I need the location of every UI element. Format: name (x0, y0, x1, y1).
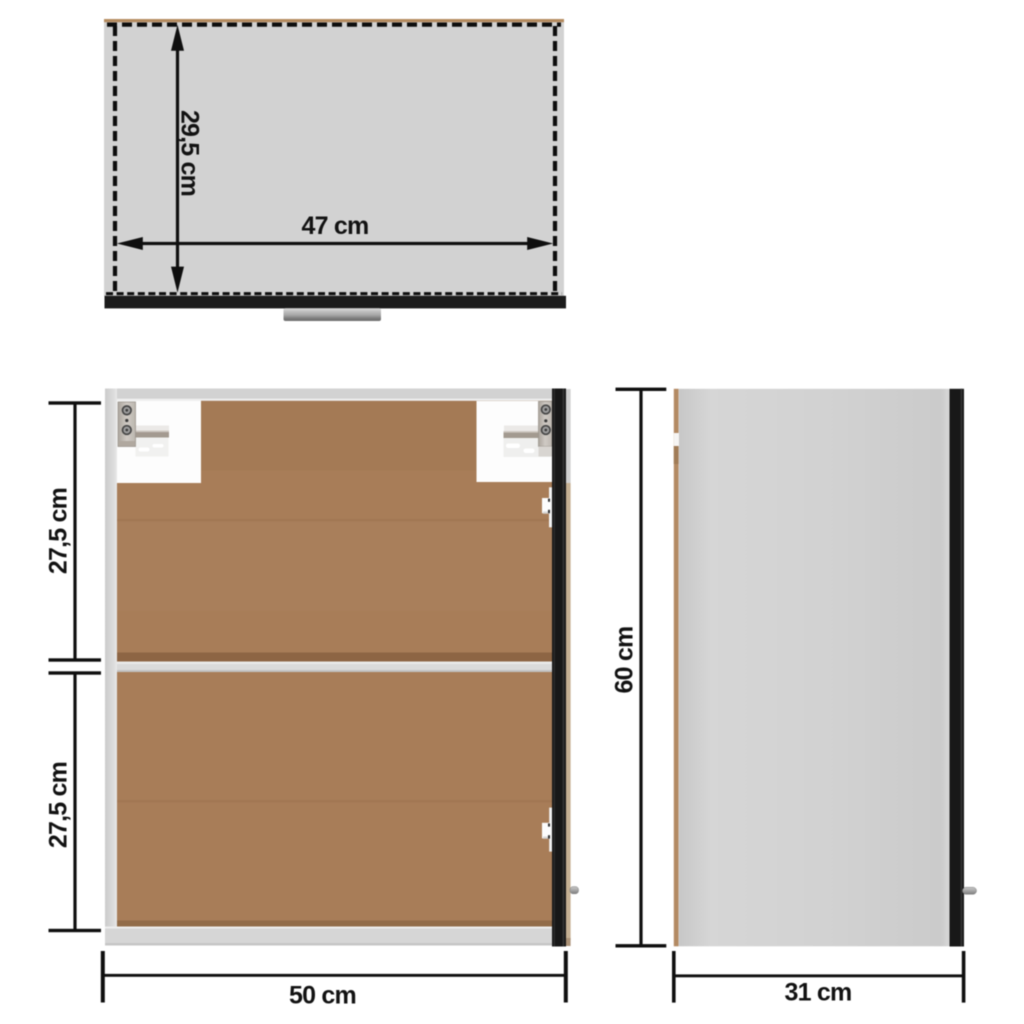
svg-text:50 cm: 50 cm (289, 982, 356, 1010)
svg-text:60 cm: 60 cm (611, 627, 639, 694)
svg-text:47 cm: 47 cm (302, 212, 369, 240)
svg-text:31 cm: 31 cm (785, 979, 852, 1007)
svg-text:29,5 cm: 29,5 cm (176, 110, 204, 196)
svg-text:27,5 cm: 27,5 cm (45, 762, 73, 848)
svg-text:27,5 cm: 27,5 cm (45, 488, 73, 574)
